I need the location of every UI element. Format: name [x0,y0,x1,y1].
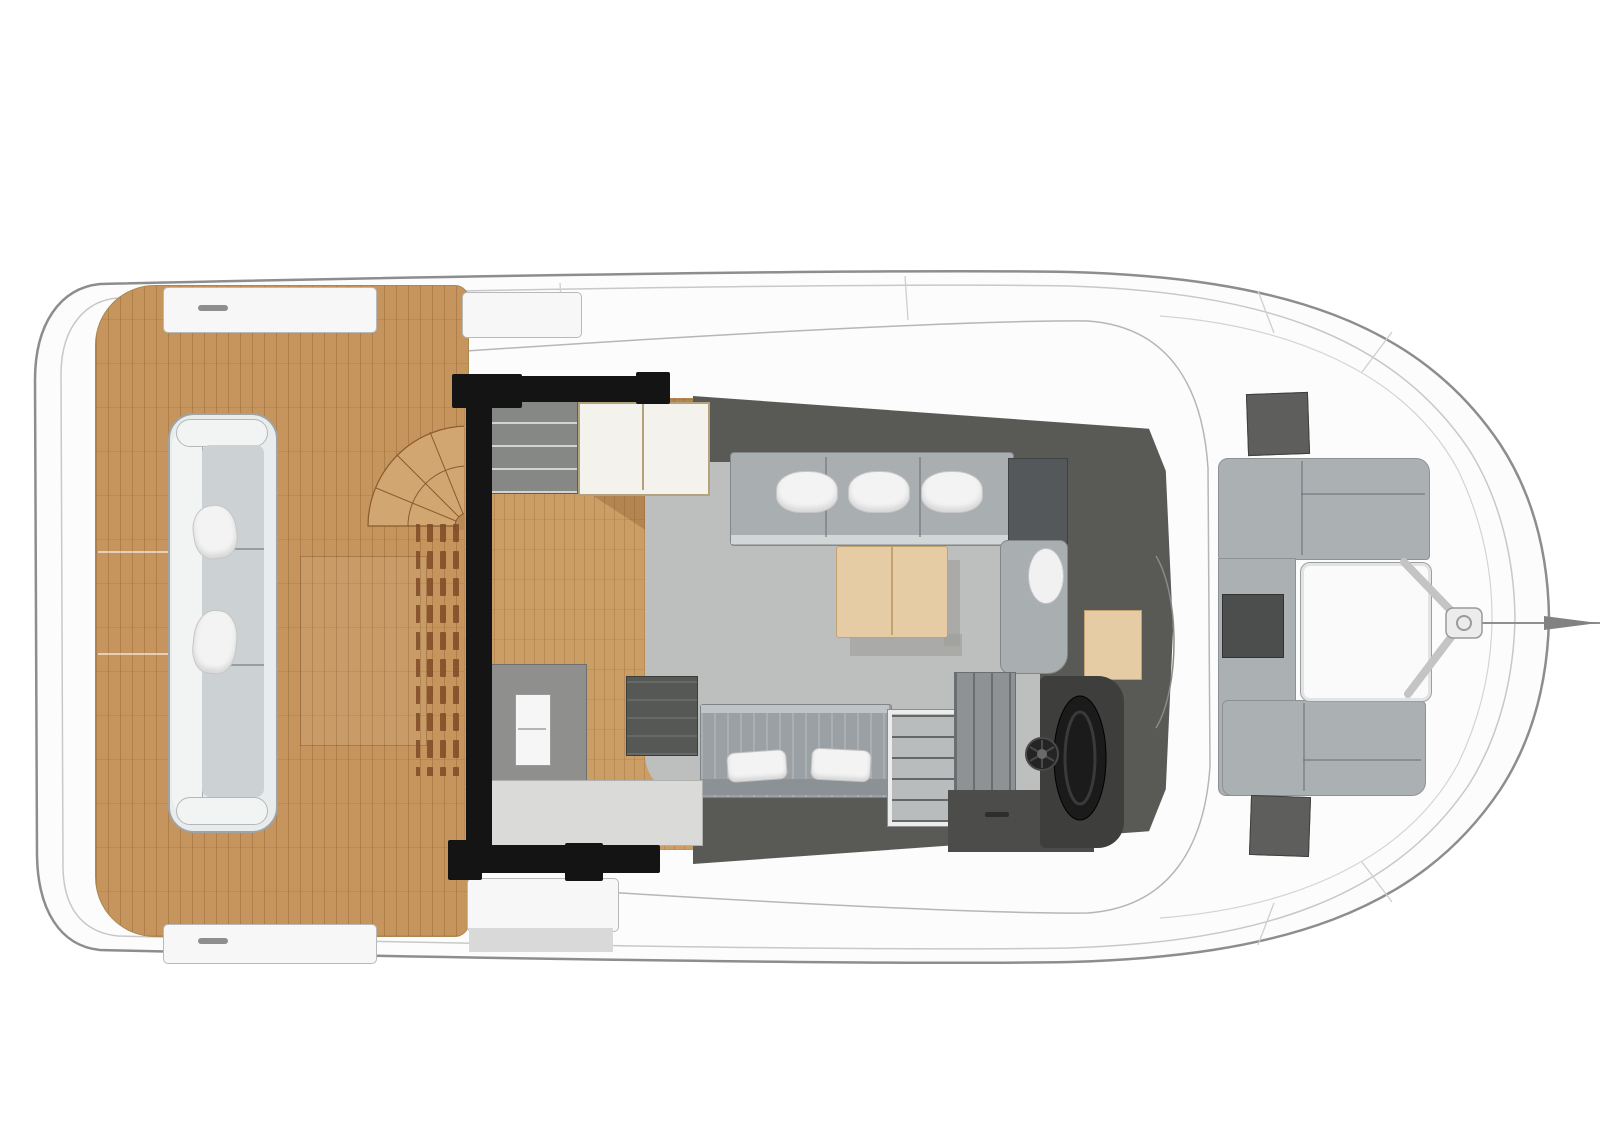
salon-sofa-pillow [776,471,838,513]
seat-seam [1303,703,1305,791]
stern-step-bottom [163,924,377,964]
foredeck-hatch-top [1246,392,1310,456]
cockpit-table-outline [300,556,427,746]
sofa-top-edge [701,705,889,713]
fridge-drawer-unit [488,400,578,494]
foredeck-table [1300,562,1432,702]
side-deck-step-top [462,292,582,338]
salon-sofa [730,452,1014,546]
foredeck-bench-bottom [1222,700,1426,796]
sliding-door-track [466,398,492,850]
seat-seam [1303,759,1421,761]
console-handle [985,812,1009,817]
step-handle [198,938,228,944]
foredeck-bench-top [1218,458,1430,560]
steering-wheel [1008,682,1148,842]
nav-cabinet [954,672,1016,792]
deck-seam [98,653,170,655]
louvered-vents [414,520,466,776]
side-deck-step-bottom [467,878,619,932]
lower-sofa-pillow [810,747,872,782]
salon-lower-sofa [700,704,892,798]
step-shadow [469,928,613,952]
deck-plan-canvas [0,0,1600,1131]
salon-sofa-pillow [848,471,910,513]
foredeck-locker [1222,594,1284,658]
door-frame-end [636,372,670,404]
salon-side-cabinet [1008,458,1068,544]
galley-counter-aft [487,780,703,846]
deck-seam [98,551,170,553]
salon-sofa-pillow [921,471,983,513]
galley-cabinet-doors [578,402,710,496]
aft-sofa-armrest-top [176,419,268,447]
aft-sofa-armrest-bottom [176,797,268,825]
helm-seat [1084,610,1142,680]
foredeck-hatch-bottom [1249,795,1311,857]
aft-sofa [168,413,278,833]
door-frame-corner [448,840,482,880]
stove-unit [626,676,698,756]
table-seam [891,547,893,635]
coffee-table [836,546,948,638]
lower-sofa-pillow [726,749,788,783]
chaise-cushion [1028,548,1064,604]
sink-divider [518,728,546,730]
sofa-front-edge [731,535,1011,544]
step-handle [198,305,228,311]
seat-seam [1301,461,1303,555]
galley-sink [515,694,551,766]
cabinet-divider [642,404,644,490]
seat-seam [1301,493,1425,495]
stern-step-top [163,287,377,333]
door-frame-end [565,843,603,881]
spiral-staircase [352,406,472,530]
